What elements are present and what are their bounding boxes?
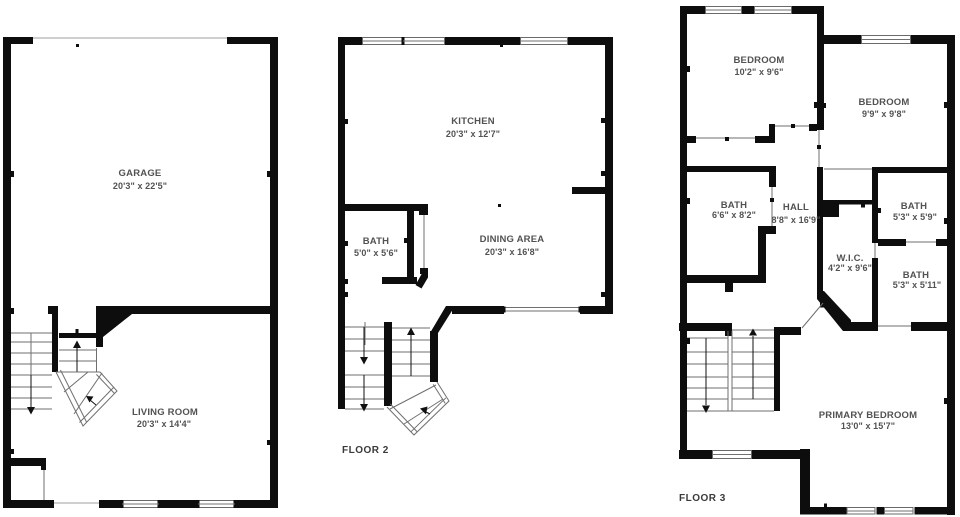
svg-text:LIVING ROOM: LIVING ROOM — [132, 407, 198, 418]
svg-text:20'3" x 14'4": 20'3" x 14'4" — [137, 419, 191, 429]
svg-text:4'2" x 9'6": 4'2" x 9'6" — [828, 263, 872, 273]
svg-text:BEDROOM: BEDROOM — [733, 55, 784, 66]
svg-text:8'8" x 16'9": 8'8" x 16'9" — [771, 215, 820, 225]
svg-text:10'2" x 9'6": 10'2" x 9'6" — [734, 67, 783, 77]
svg-text:20'3" x 12'7": 20'3" x 12'7" — [446, 129, 500, 139]
svg-text:DINING AREA: DINING AREA — [480, 234, 545, 245]
svg-text:PRIMARY BEDROOM: PRIMARY BEDROOM — [819, 410, 918, 421]
svg-text:HALL: HALL — [783, 202, 809, 213]
svg-text:BATH: BATH — [363, 236, 389, 247]
svg-text:KITCHEN: KITCHEN — [451, 116, 495, 127]
svg-text:9'9" x 9'8": 9'9" x 9'8" — [862, 109, 906, 119]
svg-text:20'3" x 22'5": 20'3" x 22'5" — [113, 181, 167, 191]
svg-text:GARAGE: GARAGE — [119, 168, 162, 179]
svg-text:6'6" x 8'2": 6'6" x 8'2" — [712, 210, 756, 220]
svg-text:13'0" x 15'7": 13'0" x 15'7" — [841, 421, 895, 431]
svg-text:5'3" x 5'11": 5'3" x 5'11" — [893, 280, 942, 290]
svg-text:BATH: BATH — [901, 201, 927, 212]
svg-text:FLOOR 3: FLOOR 3 — [679, 493, 726, 504]
svg-text:20'3" x 16'8": 20'3" x 16'8" — [485, 247, 539, 257]
svg-text:BEDROOM: BEDROOM — [858, 97, 909, 108]
svg-text:FLOOR 2: FLOOR 2 — [342, 445, 389, 456]
svg-text:5'0" x 5'6": 5'0" x 5'6" — [354, 248, 398, 258]
svg-text:5'3" x 5'9": 5'3" x 5'9" — [893, 212, 937, 222]
